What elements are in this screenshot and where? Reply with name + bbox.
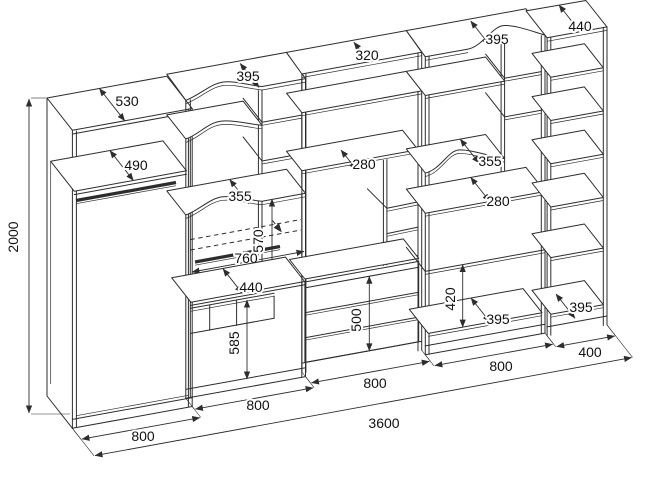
s3-top-face xyxy=(287,31,422,74)
s4-upper-shelf xyxy=(406,57,504,96)
tv-section: 320 280 500 xyxy=(287,31,422,373)
dim-s3-top-depth: 320 xyxy=(355,47,379,63)
dim-s4-niche-floor-depth: 395 xyxy=(486,311,510,327)
dim-s4-width: 800 xyxy=(489,358,513,374)
dim-s2-top-depth: 395 xyxy=(236,68,260,84)
dim-s5-width: 400 xyxy=(578,344,602,360)
dim-s1-shelf-depth: 490 xyxy=(124,157,148,173)
dim-s2-pullout-height: 570 xyxy=(250,229,266,253)
s4-top-face xyxy=(406,9,545,57)
dim-s3-shelf-depth: 280 xyxy=(352,156,376,172)
s4-280-shelf xyxy=(406,167,545,213)
dim-s1-top-depth: 530 xyxy=(115,93,139,109)
dim-s2-foldout-depth: 440 xyxy=(239,279,263,295)
shelf-tower-4: 395 355 280 395 420 xyxy=(406,9,545,355)
dim-s2-width: 800 xyxy=(246,397,270,413)
dim-s5-top-depth: 440 xyxy=(568,18,592,34)
dim-s4-niche-height: 420 xyxy=(442,287,458,311)
dim-total-width: 3600 xyxy=(368,415,399,431)
dim-s4-lower-shelf-depth: 280 xyxy=(486,193,510,209)
dim-s4-shelf-depth: 355 xyxy=(478,153,502,169)
dim-total-height: 2000 xyxy=(5,221,21,252)
dim-s3-drawers-height: 500 xyxy=(348,308,364,332)
drawing-canvas: 530 490 355 760 xyxy=(0,0,648,486)
wardrobe-section: 530 490 xyxy=(47,76,192,428)
dim-s2-shelf-depth: 355 xyxy=(228,188,252,204)
width-dimensions: 800 800 800 800 400 3600 xyxy=(72,325,632,456)
height-dimension: 2000 xyxy=(5,98,70,414)
dim-s2-base-height: 585 xyxy=(226,331,242,355)
dim-s4-top-depth: 395 xyxy=(485,31,509,47)
dim-s3-width: 800 xyxy=(363,375,387,391)
dim-s1-width: 800 xyxy=(131,428,155,444)
furniture-technical-drawing: 530 490 355 760 xyxy=(0,0,648,486)
dim-s5-shelf-depth: 395 xyxy=(569,299,593,315)
bookcase-section: 440 395 xyxy=(526,1,607,336)
